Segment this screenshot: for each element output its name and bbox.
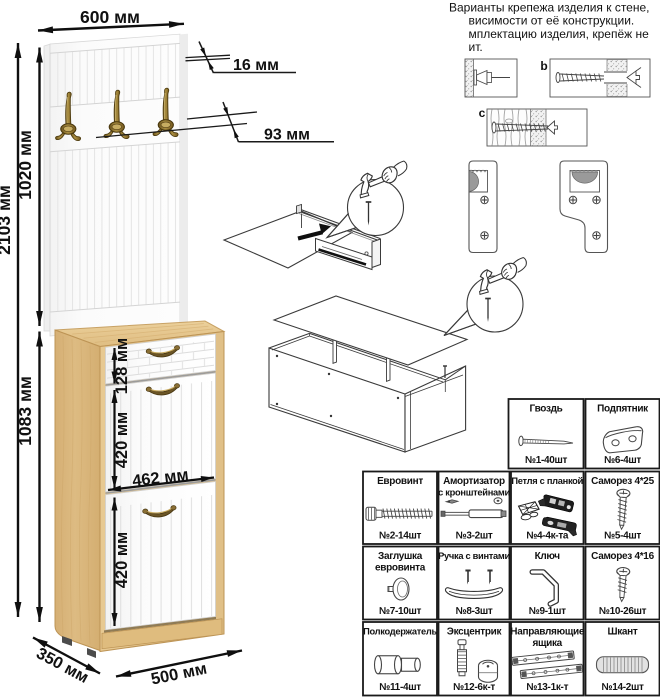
- svg-text:Заглушка: Заглушка: [378, 551, 423, 562]
- svg-text:№7-10шт: №7-10шт: [379, 606, 422, 617]
- svg-text:128 мм: 128 мм: [113, 338, 131, 395]
- svg-text:№14-2шт: №14-2шт: [601, 682, 644, 693]
- svg-text:№2-14шт: №2-14шт: [379, 531, 422, 542]
- svg-text:№12-6к-т: №12-6к-т: [453, 682, 495, 693]
- svg-text:№3-2шт: №3-2шт: [455, 531, 492, 542]
- svg-text:Ручка с винтами: Ручка с винтами: [438, 551, 510, 561]
- svg-text:Полкодержатель: Полкодержатель: [363, 627, 437, 637]
- svg-text:Варианты крепежа изделия к сте: Варианты крепежа изделия к стене,: [449, 1, 650, 15]
- svg-text:№13-1к-т: №13-1к-т: [526, 682, 568, 693]
- svg-text:№11-4шт: №11-4шт: [379, 682, 421, 693]
- svg-text:Эксцентрик: Эксцентрик: [447, 627, 503, 638]
- svg-text:2103 мм: 2103 мм: [0, 185, 14, 255]
- svg-text:1083 мм: 1083 мм: [15, 376, 35, 446]
- svg-text:Направляющие: Направляющие: [510, 627, 585, 638]
- svg-text:№1-40шт: №1-40шт: [525, 455, 568, 466]
- svg-text:c: c: [479, 106, 486, 120]
- svg-text:Гвоздь: Гвоздь: [529, 404, 562, 415]
- svg-text:b: b: [540, 59, 547, 73]
- svg-text:Саморез 4*25: Саморез 4*25: [591, 476, 654, 487]
- svg-text:Евровинт: Евровинт: [377, 476, 423, 487]
- svg-text:420 мм: 420 мм: [113, 532, 131, 589]
- svg-text:мплектацию изделия, крепёж не: мплектацию изделия, крепёж не: [469, 27, 650, 41]
- svg-text:с кронштейнами: с кронштейнами: [438, 488, 510, 498]
- svg-text:№4-4к-та: №4-4к-та: [526, 531, 569, 542]
- svg-text:висимости от её конструкции.: висимости от её конструкции.: [469, 14, 635, 28]
- svg-text:ит.: ит.: [469, 40, 483, 54]
- svg-text:евровинта: евровинта: [375, 563, 426, 574]
- svg-text:Подпятник: Подпятник: [597, 404, 649, 415]
- svg-text:№6-4шт: №6-4шт: [604, 455, 641, 466]
- svg-text:№9-1шт: №9-1шт: [529, 606, 566, 617]
- svg-text:Саморез 4*16: Саморез 4*16: [591, 551, 654, 562]
- svg-text:Амортизатор: Амортизатор: [443, 476, 505, 487]
- svg-text:350 мм: 350 мм: [33, 644, 91, 687]
- svg-text:№5-4шт: №5-4шт: [604, 531, 641, 542]
- svg-text:16 мм: 16 мм: [233, 57, 279, 74]
- svg-text:№10-26шт: №10-26шт: [599, 606, 647, 617]
- svg-text:600 мм: 600 мм: [80, 7, 140, 27]
- svg-text:№8-3шт: №8-3шт: [455, 606, 492, 617]
- svg-text:Шкант: Шкант: [607, 627, 637, 638]
- svg-text:93 мм: 93 мм: [264, 127, 310, 144]
- svg-text:1020 мм: 1020 мм: [15, 130, 35, 200]
- svg-text:Ключ: Ключ: [535, 551, 561, 562]
- svg-text:500 мм: 500 мм: [149, 660, 208, 689]
- svg-text:Петля с планкой: Петля с планкой: [511, 476, 583, 486]
- svg-text:420 мм: 420 мм: [113, 412, 131, 469]
- svg-text:ящика: ящика: [532, 638, 562, 649]
